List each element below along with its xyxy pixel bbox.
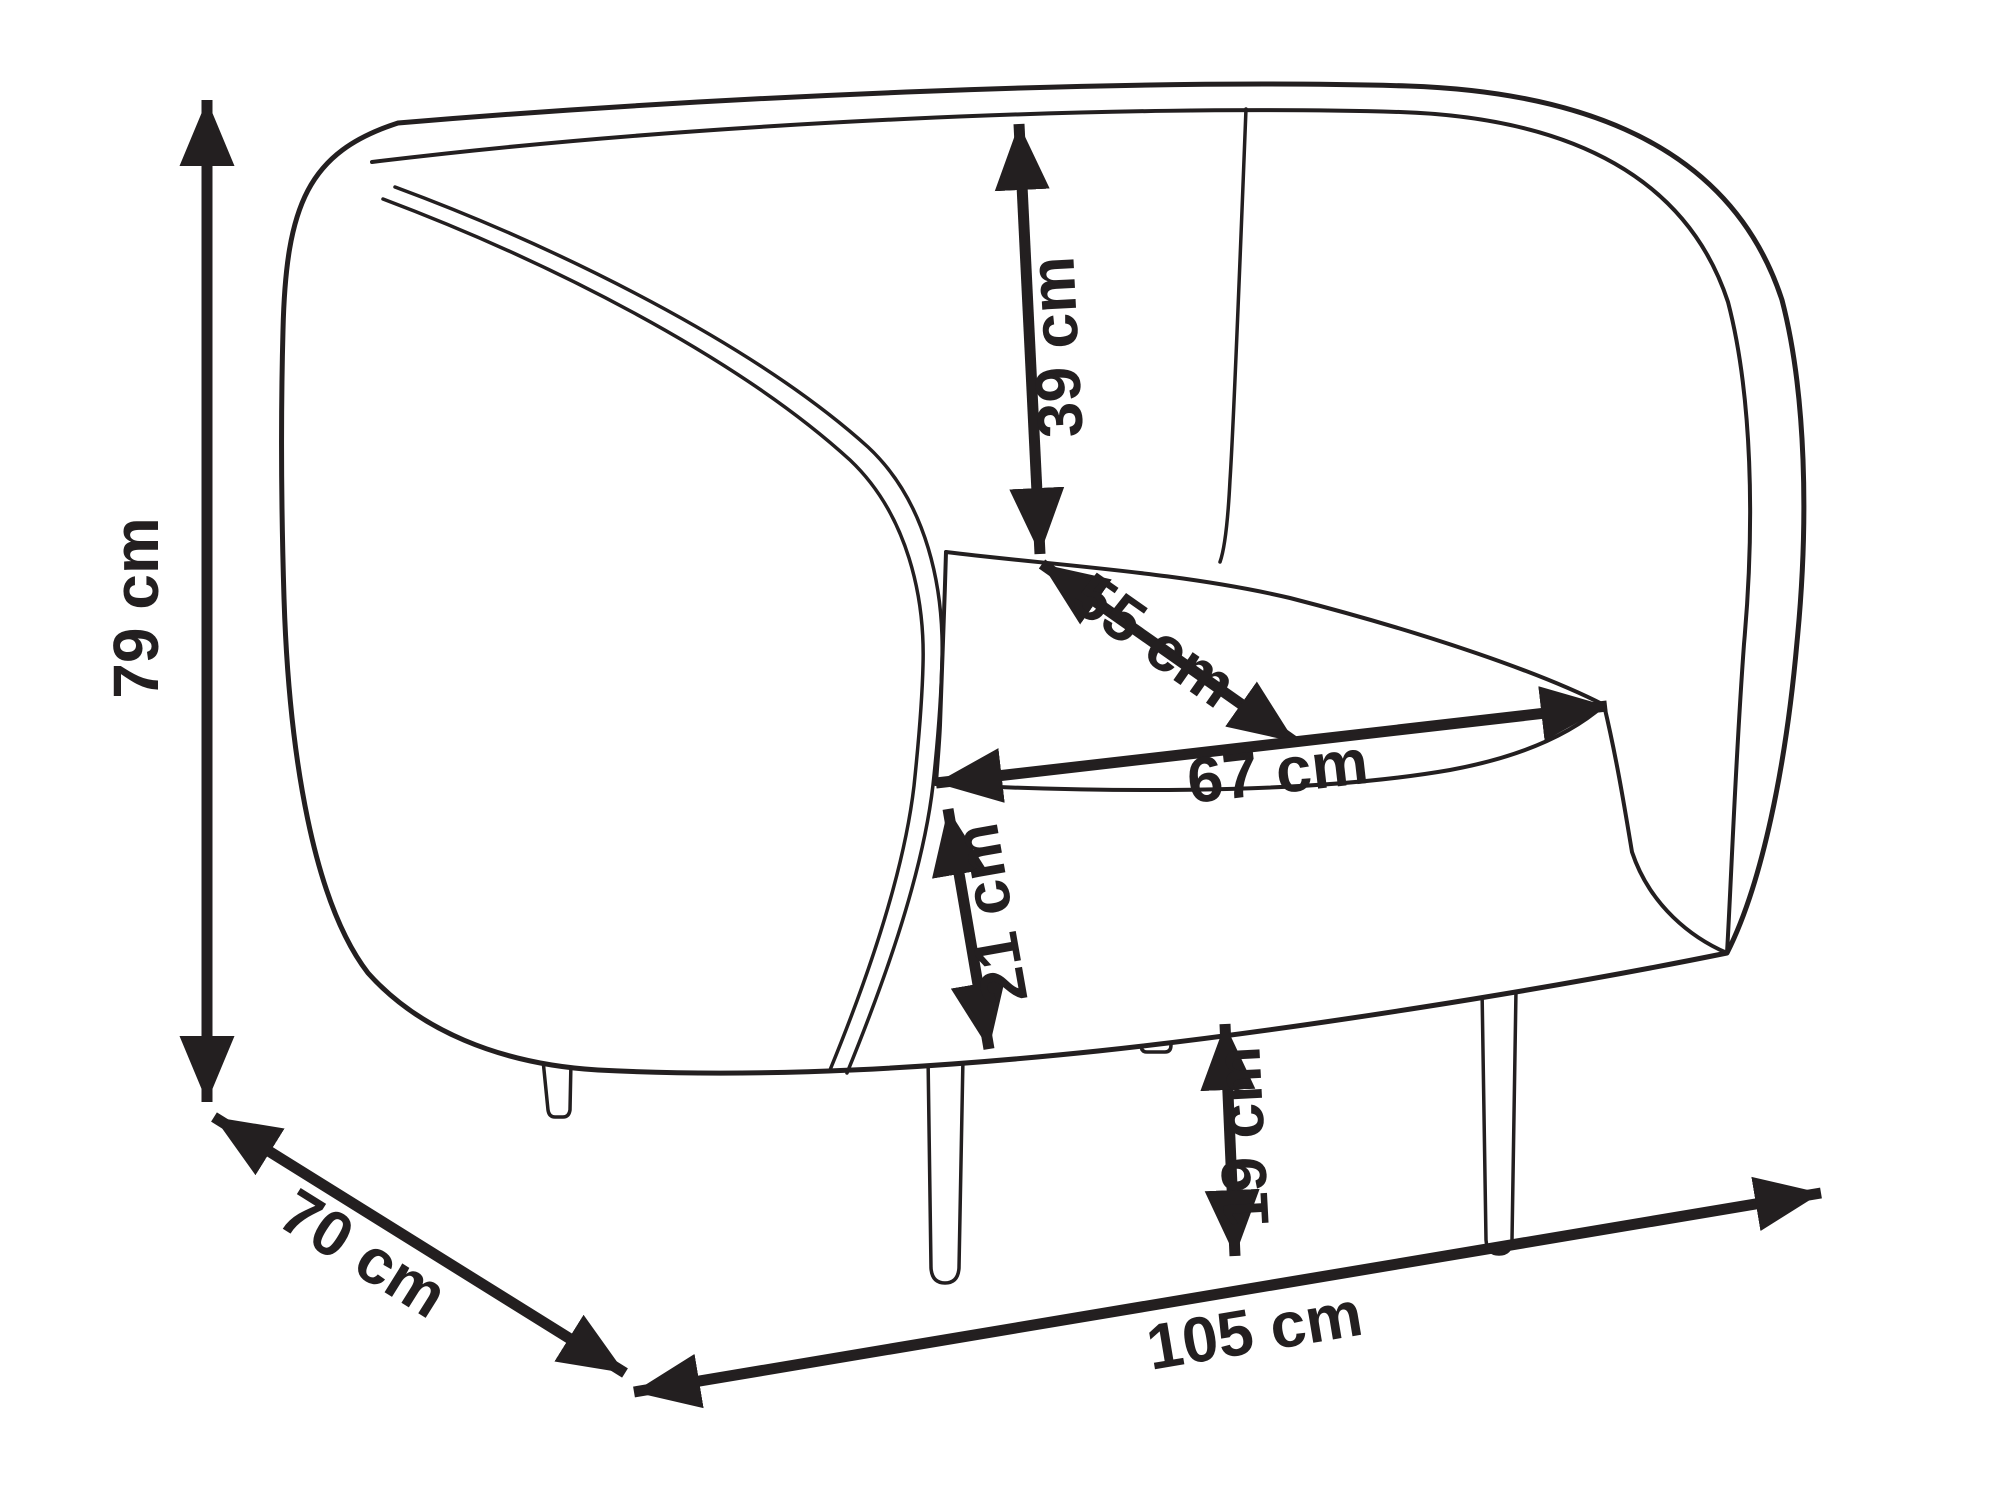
dimension-overall-height: 79 cm (100, 100, 207, 1102)
armchair-dimensions-diagram: 79 cm 70 cm 105 cm 39 cm 55 cm (0, 0, 2000, 1500)
dimension-overall-depth: 70 cm (214, 1117, 625, 1373)
backrest-height-label: 39 cm (1015, 255, 1096, 440)
dimension-leg-height: 19 cm (1201, 1024, 1282, 1256)
leg-height-label: 19 cm (1201, 1045, 1282, 1230)
overall-depth-label: 70 cm (268, 1175, 460, 1332)
chair-leg-front-left (928, 1055, 963, 1283)
overall-height-label: 79 cm (100, 517, 172, 698)
chair-leg-front-right (1482, 988, 1516, 1254)
diagram-canvas: 79 cm 70 cm 105 cm 39 cm 55 cm (0, 0, 2000, 1500)
overall-width-label: 105 cm (1141, 1277, 1367, 1384)
